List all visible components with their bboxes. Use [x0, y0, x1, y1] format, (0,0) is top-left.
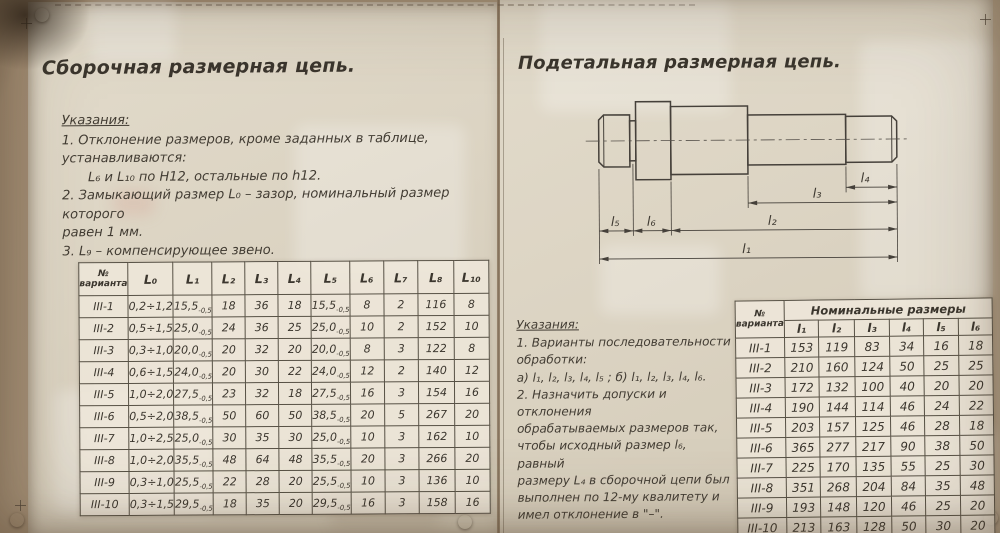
value-cell: 119 [819, 337, 855, 357]
registration-cross-icon [15, 500, 26, 511]
value-cell: 35 [925, 475, 960, 495]
tolerance-subscript: -0,5 [199, 417, 212, 425]
value-cell: 84 [891, 476, 925, 496]
label-l4: l₄ [861, 171, 871, 186]
table-row: III-40,6÷1,524,0-0,520302224,0-0,5122140… [79, 359, 489, 384]
value-cell: 48 [213, 449, 246, 471]
value-cell: 20 [278, 338, 311, 360]
nominal-sizes-table: № варианта Номинальные размеры l₁ l₂ l₃ … [735, 297, 996, 533]
value-cell: 27,5-0,5 [312, 382, 351, 404]
table-row: III-10213163128503020 [738, 515, 995, 533]
table-row: III-30,3÷1,020,0-0,520322020,0-0,5831228 [79, 337, 489, 362]
row-header-cell: III-9 [737, 497, 786, 518]
value-cell: 46 [891, 416, 925, 436]
value-cell: 30 [213, 427, 246, 449]
value-cell: 12 [454, 359, 489, 381]
value-cell: 25,0-0,5 [311, 316, 350, 338]
value-cell: 158 [419, 491, 455, 513]
tolerance-subscript: -0,5 [337, 482, 350, 490]
table-row: III-60,5÷2,038,5-0,550605038,5-0,5205267… [80, 403, 490, 428]
col-header: l₄ [889, 319, 923, 336]
value-cell: 30 [926, 515, 961, 533]
value-cell: 60 [246, 405, 279, 427]
value-cell: 25 [926, 495, 961, 515]
value-cell: 48 [960, 475, 994, 495]
value-cell: 50 [213, 405, 246, 427]
col-header: L₆ [350, 261, 384, 294]
table-row: III-90,3÷1,025,5-0,522282025,5-0,5103136… [80, 469, 490, 494]
value-cell: 25 [925, 455, 960, 475]
value-cell: 0,5÷2,0 [129, 405, 174, 427]
left-notes-lines: 1. Отклонение размеров, кроме заданных в… [62, 129, 463, 261]
value-cell: 20 [279, 492, 312, 514]
value-cell: 20 [961, 495, 995, 515]
tolerance-subscript: -0,5 [337, 394, 350, 402]
value-cell: 2 [384, 360, 418, 382]
value-cell: 64 [246, 449, 279, 471]
value-cell: 20 [279, 470, 312, 492]
value-cell: 22 [959, 395, 993, 415]
row-header-cell: III-8 [80, 449, 129, 471]
value-cell: 136 [419, 469, 455, 491]
value-cell: 190 [785, 397, 819, 417]
value-cell: 24,0-0,5 [174, 361, 213, 383]
value-cell: 10 [455, 425, 490, 447]
value-cell: 132 [819, 377, 855, 397]
value-cell: 29,5-0,5 [174, 493, 213, 515]
tolerance-subscript: -0,5 [199, 483, 212, 491]
row-header-cell: III-9 [80, 471, 129, 493]
value-cell: 116 [418, 293, 454, 315]
screw-icon [458, 515, 472, 529]
row-header-cell: III-7 [80, 427, 129, 449]
note-line: 1. Отклонение размеров, кроме заданных в… [62, 129, 462, 150]
value-cell: 148 [821, 497, 857, 517]
tolerance-subscript: -0,5 [336, 350, 349, 358]
tolerance-subscript: -0,5 [198, 307, 211, 315]
value-cell: 38 [925, 435, 960, 455]
value-cell: 217 [856, 436, 891, 456]
row-header-cell: III-4 [736, 397, 785, 418]
tolerance-subscript: -0,5 [337, 504, 350, 512]
value-cell: 20 [351, 448, 385, 470]
value-cell: 23 [213, 383, 246, 405]
value-cell: 18 [213, 493, 246, 515]
value-cell: 3 [384, 338, 418, 360]
col-header: L₃ [245, 262, 278, 295]
tolerance-subscript: -0,5 [199, 439, 212, 447]
col-header: L₀ [128, 262, 173, 295]
value-cell: 8 [350, 338, 384, 360]
value-cell: 0,3÷1,5 [129, 493, 174, 515]
row-header-cell: III-2 [736, 357, 785, 378]
table-row: III-100,3÷1,529,5-0,518352029,5-0,516315… [80, 491, 490, 516]
value-cell: 25 [924, 355, 959, 375]
value-cell: 36 [245, 295, 278, 317]
value-cell: 50 [890, 356, 924, 376]
value-cell: 152 [418, 315, 454, 337]
right-panel-title: Подетальная размерная цепь. [518, 51, 841, 74]
sheet-divider-line [497, 0, 500, 533]
value-cell: 266 [419, 447, 455, 469]
registration-cross-icon [980, 14, 991, 25]
assembly-chain-table-wrap: № варианта L₀ L₁ L₂ L₃ L₄ L₅ L₆ L₇ L₈ L₁… [78, 260, 490, 517]
right-notes-lines: 1. Варианты последовательностиобработки:… [516, 333, 735, 524]
note-line: выполнен по 12-му квалитету и [517, 488, 735, 507]
note-line: 2. Назначить допуски и отклонения [517, 385, 735, 421]
value-cell: 351 [786, 477, 820, 497]
value-cell: 25,0-0,5 [173, 317, 212, 339]
value-cell: 16 [350, 382, 384, 404]
value-cell: 25,5-0,5 [174, 471, 213, 493]
photographed-poster: Сборочная размерная цепь. Указания: 1. О… [0, 0, 1000, 533]
value-cell: 3 [385, 426, 419, 448]
row-header-cell: III-6 [737, 437, 786, 458]
value-cell: 15,5-0,5 [173, 295, 212, 317]
row-header-cell: III-1 [79, 295, 128, 317]
value-cell: 160 [819, 357, 855, 377]
value-cell: 35,5-0,5 [312, 448, 351, 470]
value-cell: 144 [819, 397, 855, 417]
col-header: L₁₀ [454, 260, 489, 293]
value-cell: 128 [857, 516, 892, 533]
value-cell: 125 [856, 416, 891, 436]
value-cell: 28 [925, 415, 960, 435]
note-line: чтобы исходный размер l₆, равный [517, 437, 735, 473]
value-cell: 20 [351, 404, 385, 426]
value-cell: 32 [245, 339, 278, 361]
value-cell: 25,5-0,5 [312, 470, 351, 492]
value-cell: 163 [821, 517, 857, 533]
table-row: III-71,0÷2,525,0-0,530353025,0-0,5103162… [80, 425, 490, 450]
tolerance-subscript: -0,5 [199, 461, 212, 469]
tolerance-subscript: -0,5 [198, 329, 211, 337]
value-cell: 22 [278, 360, 311, 382]
value-cell: 16 [455, 491, 490, 513]
value-cell: 83 [855, 336, 890, 356]
note-line: 3. L₉ – компенсирующее звено. [62, 240, 462, 261]
value-cell: 20,0-0,5 [174, 339, 213, 361]
value-cell: 18 [278, 294, 311, 316]
table-row: III-51,0÷2,027,5-0,523321827,5-0,5163154… [79, 381, 489, 406]
col-header-variant: № варианта [735, 300, 785, 338]
value-cell: 10 [454, 315, 489, 337]
tolerance-subscript: -0,5 [336, 306, 349, 314]
value-cell: 3 [385, 448, 419, 470]
value-cell: 204 [856, 476, 891, 496]
value-cell: 34 [890, 336, 924, 356]
dimension-labels: l₄ l₃ l₂ l₅ l₆ l₁ [611, 171, 871, 258]
sheet-margin-line [503, 38, 504, 533]
note-line: 1. Варианты последовательности [516, 333, 734, 352]
note-line: имел отклонение в "–". [518, 505, 736, 524]
left-notes-heading: Указания: [61, 110, 461, 131]
value-cell: 20 [212, 361, 245, 383]
value-cell: 50 [960, 435, 994, 455]
value-cell: 25,0-0,5 [312, 426, 351, 448]
note-line: обработки: [517, 351, 735, 370]
value-cell: 20 [959, 375, 993, 395]
value-cell: 122 [418, 337, 454, 359]
row-header-cell: III-10 [738, 517, 787, 533]
value-cell: 10 [350, 316, 384, 338]
row-header-cell: III-5 [736, 417, 785, 438]
shaft-drawing: l₄ l₃ l₂ l₅ l₆ l₁ [519, 84, 982, 272]
row-header-cell: III-7 [737, 457, 786, 478]
value-cell: 18 [959, 335, 993, 355]
value-cell: 100 [855, 376, 890, 396]
col-header: L₅ [311, 261, 350, 294]
value-cell: 135 [856, 456, 891, 476]
row-header-cell: III-8 [737, 477, 786, 498]
value-cell: 20 [924, 375, 959, 395]
value-cell: 22 [213, 471, 246, 493]
value-cell: 18 [212, 295, 245, 317]
group-header: Номинальные размеры [784, 298, 992, 321]
value-cell: 50 [279, 404, 312, 426]
value-cell: 170 [820, 457, 856, 477]
value-cell: 124 [855, 356, 890, 376]
table-row: III-20,5÷1,525,0-0,524362525,0-0,5102152… [79, 315, 489, 340]
value-cell: 90 [891, 436, 925, 456]
col-header: L₁ [173, 262, 212, 295]
assembly-chain-table: № варианта L₀ L₁ L₂ L₃ L₄ L₅ L₆ L₇ L₈ L₁… [78, 260, 490, 517]
tolerance-subscript: -0,5 [199, 395, 212, 403]
value-cell: 16 [351, 492, 385, 514]
col-header: L₄ [278, 261, 311, 294]
row-header-cell: III-6 [80, 405, 129, 427]
value-cell: 267 [419, 403, 455, 425]
value-cell: 0,3÷1,0 [129, 471, 174, 493]
value-cell: 0,6÷1,5 [128, 361, 173, 383]
note-line: обрабатываемых размеров так, [517, 419, 735, 438]
value-cell: 3 [385, 492, 419, 514]
value-cell: 20 [961, 515, 995, 533]
value-cell: 35 [246, 493, 279, 515]
value-cell: 46 [890, 396, 924, 416]
value-cell: 172 [785, 377, 819, 397]
tolerance-subscript: -0,5 [200, 505, 213, 513]
dim-line-l3 [748, 202, 897, 203]
tolerance-subscript: -0,5 [199, 373, 212, 381]
value-cell: 162 [419, 425, 455, 447]
value-cell: 28 [246, 471, 279, 493]
value-cell: 210 [785, 357, 819, 377]
row-header-cell: III-2 [79, 317, 128, 339]
value-cell: 10 [351, 470, 385, 492]
label-l5: l₅ [611, 215, 620, 230]
value-cell: 35,5-0,5 [174, 449, 213, 471]
value-cell: 25,0-0,5 [174, 427, 213, 449]
value-cell: 46 [892, 496, 926, 516]
col-header: l₅ [923, 318, 958, 335]
corner-shadow [0, 0, 90, 70]
value-cell: 30 [279, 426, 312, 448]
note-line: размеру L₄ в сборочной цепи был [517, 471, 735, 490]
value-cell: 30 [245, 361, 278, 383]
value-cell: 38,5-0,5 [312, 404, 351, 426]
value-cell: 15,5-0,5 [311, 294, 350, 316]
value-cell: 12 [350, 360, 384, 382]
value-cell: 48 [279, 448, 312, 470]
value-cell: 0,3÷1,0 [128, 339, 173, 361]
col-header: L₇ [384, 261, 418, 294]
value-cell: 1,0÷2,5 [129, 427, 174, 449]
note-line: а) l₁, l₂, l₃, l₄, l₅ ; б) l₁, l₂, l₃, l… [517, 368, 735, 387]
value-cell: 0,2÷1,2 [128, 295, 173, 317]
right-notes-block: Указания: 1. Варианты последовательности… [516, 315, 735, 524]
value-cell: 16 [454, 381, 489, 403]
col-header: l₁ [784, 320, 818, 337]
value-cell: 1,0÷2,0 [129, 449, 174, 471]
col-header: L₈ [418, 260, 454, 293]
value-cell: 1,0÷2,0 [129, 383, 174, 405]
value-cell: 277 [820, 437, 856, 457]
col-header-variant: № варианта [79, 262, 128, 295]
value-cell: 25 [959, 355, 993, 375]
value-cell: 20 [455, 447, 490, 469]
value-cell: 153 [785, 337, 819, 357]
screw-icon [10, 513, 24, 527]
value-cell: 40 [890, 376, 924, 396]
value-cell: 203 [786, 417, 820, 437]
value-cell: 213 [787, 517, 821, 533]
value-cell: 29,5-0,5 [312, 492, 351, 514]
dim-line-l1 [600, 257, 898, 259]
left-notes-block: Указания: 1. Отклонение размеров, кроме … [61, 110, 462, 262]
value-cell: 24,0-0,5 [311, 360, 350, 382]
value-cell: 3 [384, 382, 418, 404]
value-cell: 0,5÷1,5 [128, 317, 173, 339]
reflection-patch [90, 0, 175, 62]
value-cell: 27,5-0,5 [174, 383, 213, 405]
header-row: № варианта L₀ L₁ L₂ L₃ L₄ L₅ L₆ L₇ L₈ L₁… [79, 260, 489, 296]
value-cell: 25 [278, 316, 311, 338]
value-cell: 20 [212, 339, 245, 361]
row-header-cell: III-1 [736, 337, 785, 358]
note-line: 2. Замыкающий размер L₀ – зазор, номинал… [62, 185, 462, 225]
col-header: L₂ [212, 262, 245, 295]
value-cell: 24 [212, 317, 245, 339]
value-cell: 365 [786, 437, 820, 457]
row-header-cell: III-3 [736, 377, 785, 398]
row-header-cell: III-3 [79, 339, 128, 361]
value-cell: 2 [384, 316, 418, 338]
value-cell: 3 [385, 470, 419, 492]
tolerance-subscript: -0,5 [336, 328, 349, 336]
tolerance-subscript: -0,5 [337, 372, 350, 380]
tolerance-subscript: -0,5 [337, 460, 350, 468]
value-cell: 30 [960, 455, 994, 475]
nominal-sizes-table-wrap: № варианта Номинальные размеры l₁ l₂ l₃ … [735, 297, 996, 533]
value-cell: 18 [279, 382, 312, 404]
value-cell: 55 [891, 456, 925, 476]
value-cell: 24 [924, 395, 959, 415]
value-cell: 114 [855, 396, 890, 416]
value-cell: 5 [385, 404, 419, 426]
value-cell: 120 [857, 496, 892, 516]
value-cell: 50 [892, 516, 926, 533]
col-header: l₂ [818, 320, 854, 337]
value-cell: 18 [960, 415, 994, 435]
label-l2: l₂ [768, 214, 777, 229]
value-cell: 10 [455, 469, 490, 491]
value-cell: 10 [351, 426, 385, 448]
value-cell: 32 [246, 383, 279, 405]
row-header-cell: III-4 [79, 361, 128, 383]
value-cell: 193 [787, 497, 821, 517]
right-notes-heading: Указания: [516, 315, 734, 334]
dim-line-l5-l6-l2 [599, 229, 897, 231]
tolerance-subscript: -0,5 [337, 438, 350, 446]
value-cell: 38,5-0,5 [174, 405, 213, 427]
row-header-cell: III-10 [80, 493, 129, 515]
value-cell: 8 [454, 337, 489, 359]
tolerance-subscript: -0,5 [199, 351, 212, 359]
col-header: l₃ [854, 319, 889, 336]
table-row: III-81,0÷2,035,5-0,548644835,5-0,5203266… [80, 447, 490, 472]
value-cell: 225 [786, 457, 820, 477]
value-cell: 157 [820, 417, 856, 437]
value-cell: 268 [820, 477, 856, 497]
value-cell: 20 [455, 403, 490, 425]
label-l6: l₆ [647, 215, 656, 230]
value-cell: 2 [384, 294, 418, 316]
value-cell: 35 [246, 427, 279, 449]
value-cell: 16 [924, 335, 959, 355]
row-header-cell: III-5 [79, 383, 128, 405]
value-cell: 20,0-0,5 [311, 338, 350, 360]
value-cell: 8 [454, 293, 489, 315]
value-cell: 140 [418, 359, 454, 381]
value-cell: 154 [418, 381, 454, 403]
tolerance-subscript: -0,5 [337, 416, 350, 424]
label-l1: l₁ [742, 242, 751, 257]
table-row: III-10,2÷1,215,5-0,518361815,5-0,5821168 [79, 293, 489, 318]
col-header: l₆ [958, 318, 992, 335]
value-cell: 36 [245, 317, 278, 339]
label-l3: l₃ [813, 187, 822, 202]
value-cell: 8 [350, 294, 384, 316]
